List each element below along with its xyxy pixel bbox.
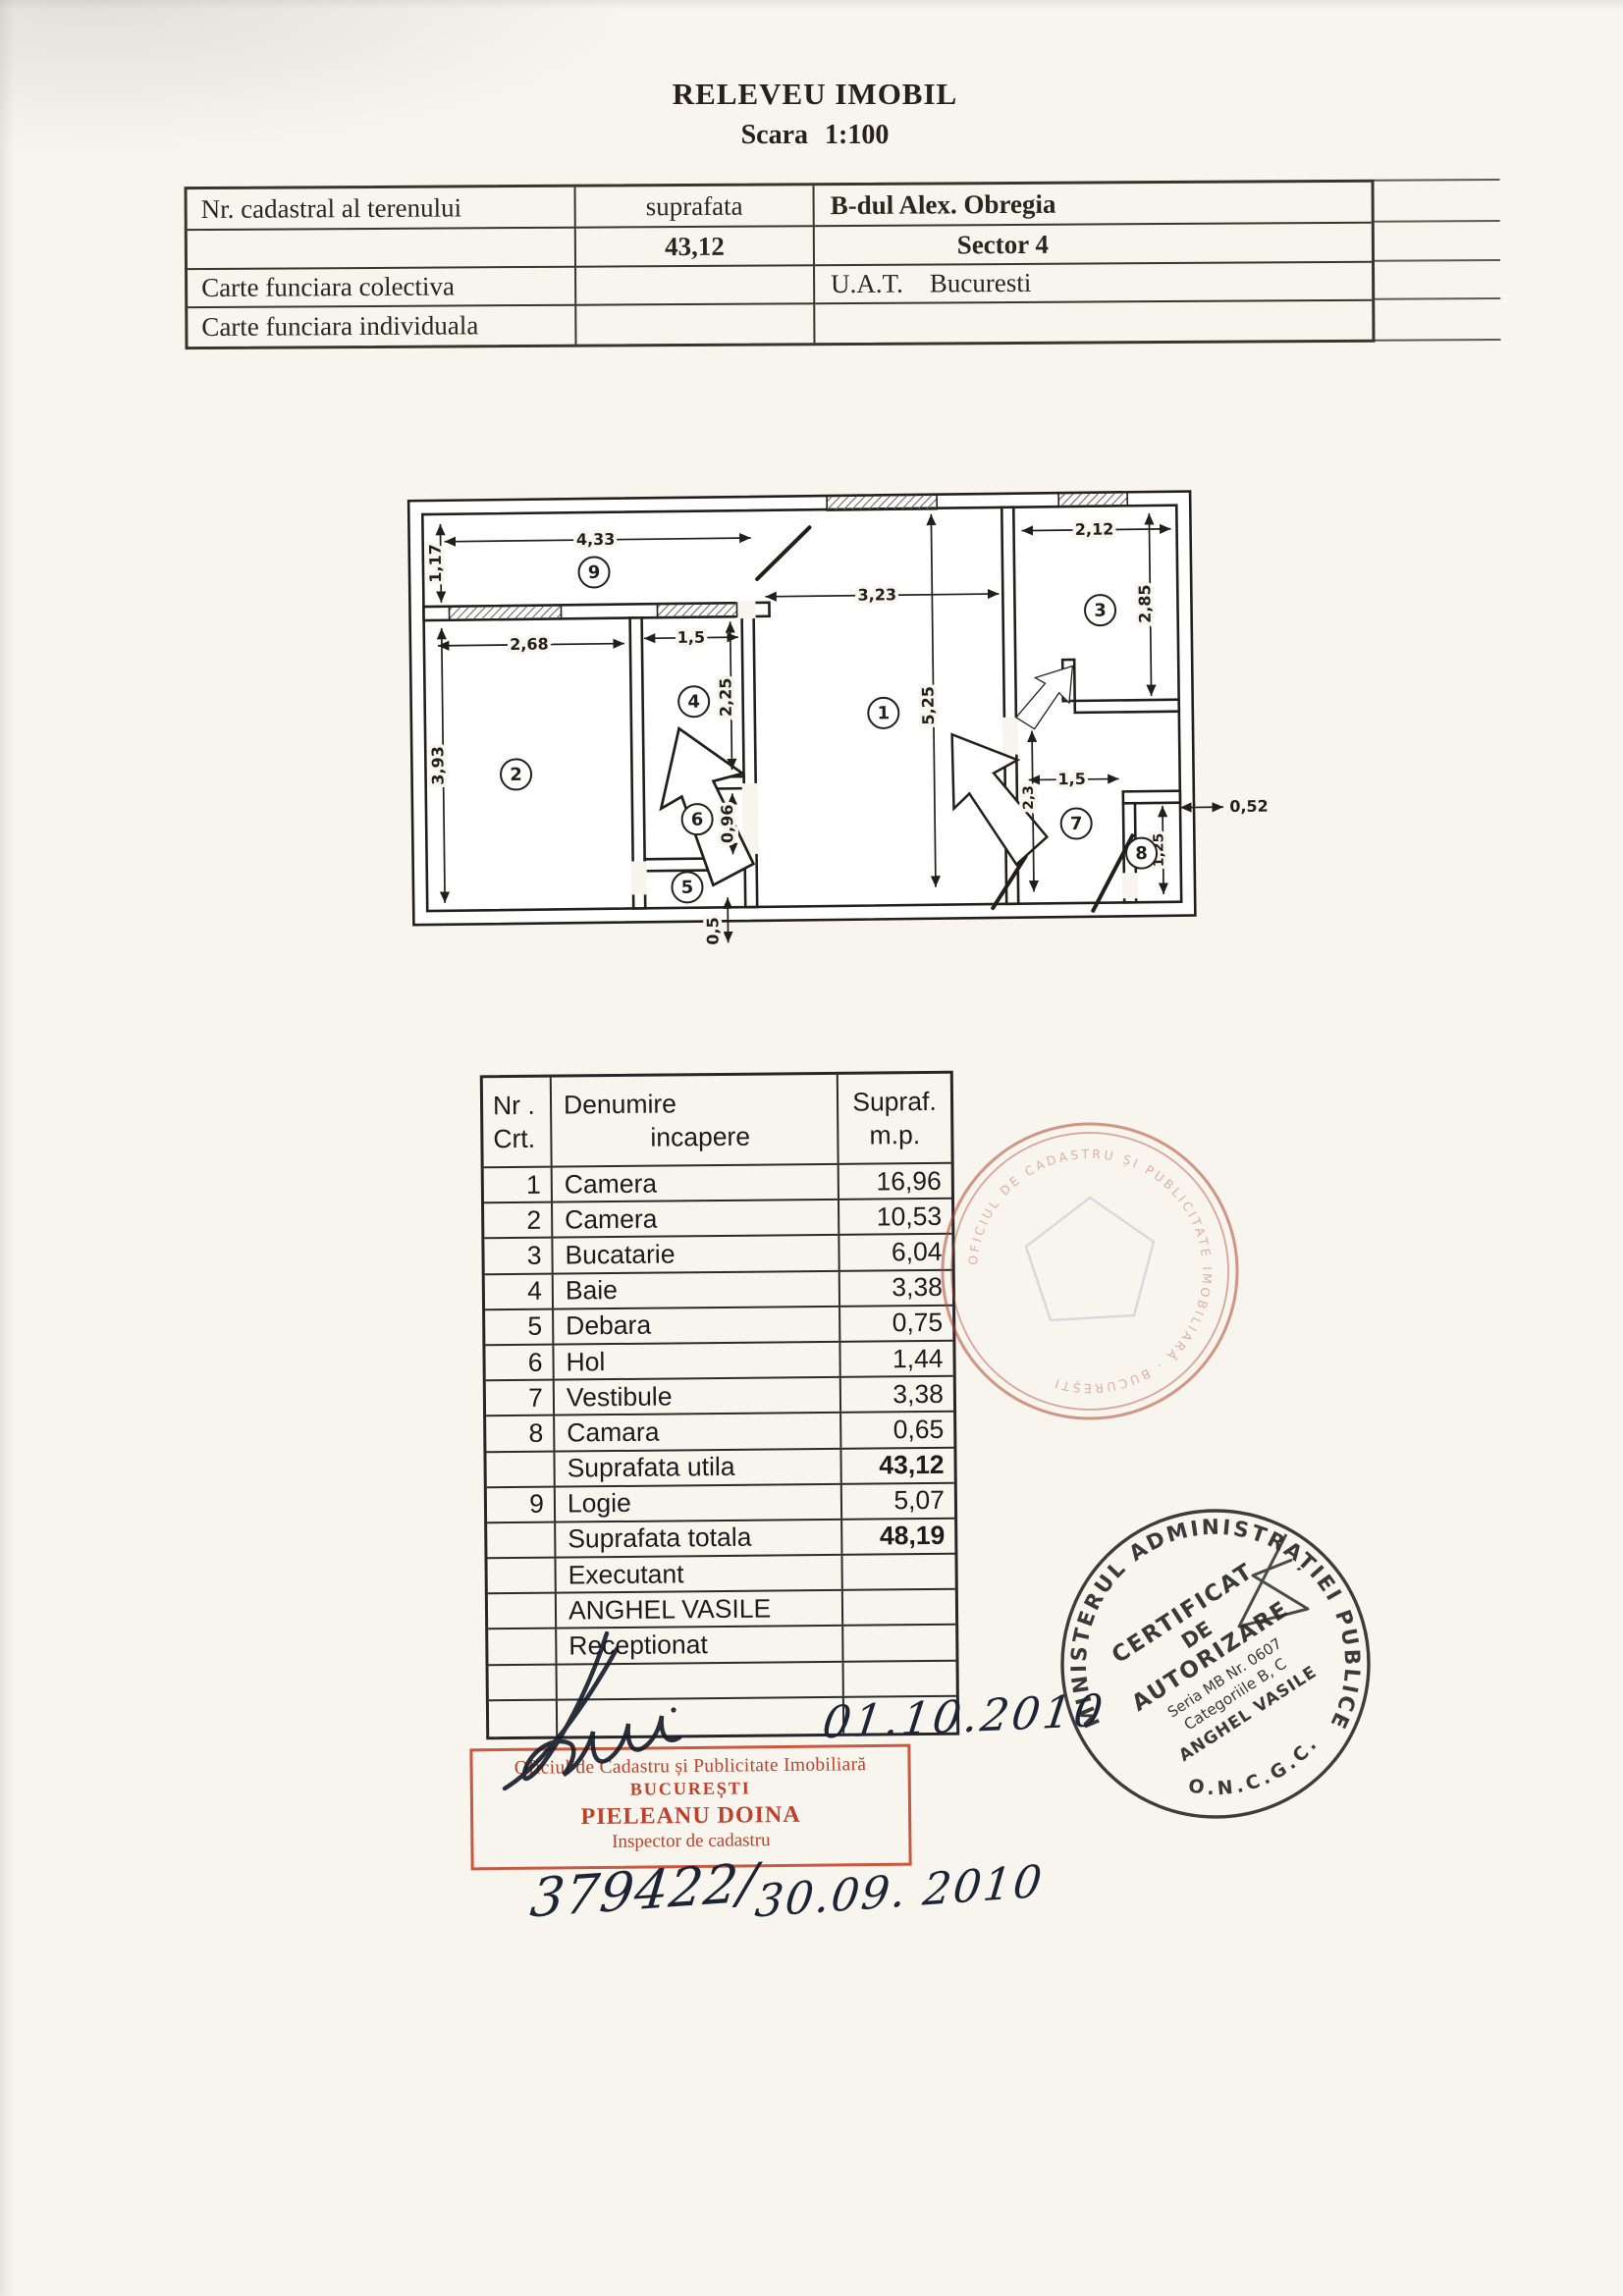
info-cell: Nr. cadastral al terenului — [188, 187, 576, 231]
dim-label: 0,52 — [1229, 797, 1269, 816]
room-number-9: 9 — [578, 557, 609, 587]
stamp-emblem — [1026, 1198, 1154, 1320]
info-cell: Carte funciara colectiva — [188, 268, 576, 308]
dim-label: 2,25 — [716, 677, 734, 717]
room-number-3: 3 — [1085, 595, 1115, 625]
table-row: 3Bucatarie6,04 — [484, 1235, 951, 1275]
table-line-extension — [1375, 259, 1500, 262]
table-row: 8Camara0,65 — [486, 1413, 953, 1453]
registration-number-right: 30.09. 2010 — [753, 1855, 1047, 1928]
dim-label: 1,5 — [1057, 770, 1086, 788]
info-cell — [188, 229, 576, 270]
page-title: RELEVEU IMOBIL — [550, 77, 1080, 112]
table-line-extension — [1375, 297, 1500, 300]
svg-text:6: 6 — [691, 810, 704, 830]
table-line-extension — [1374, 179, 1499, 182]
svg-text:3: 3 — [1094, 601, 1107, 621]
dim-label: 0,5 — [703, 917, 722, 945]
scale-label: Scara 1:100 — [550, 120, 1080, 151]
table-row: Suprafata utila43,12 — [486, 1448, 953, 1488]
dim-label: 2,3 — [1021, 785, 1037, 810]
dim-label: 2,68 — [510, 635, 549, 654]
dim-label: 2,12 — [1075, 519, 1114, 538]
info-cell: U.A.T. Bucuresti — [815, 263, 1372, 304]
table-header-row: Nr . Crt. Denumire incapere Supraf. m.p. — [483, 1074, 951, 1169]
room-number-4: 4 — [678, 686, 709, 717]
dim-label: 0,96 — [718, 804, 736, 843]
table-row: 9Logie5,07 — [487, 1483, 954, 1523]
cadastral-info-table: Nr. cadastral al terenului suprafata B-d… — [185, 179, 1513, 349]
dim-label: 4,33 — [576, 530, 616, 549]
stamp-center-text: CERTIFICAT DE AUTORIZARE Seria MB Nr. 06… — [1100, 1554, 1329, 1772]
svg-text:2: 2 — [510, 765, 522, 785]
info-cell: B-dul Alex. Obregia — [815, 183, 1372, 227]
floor-plan: .wall{fill:#ffffff;stroke:#221f1a;stroke… — [385, 470, 1279, 987]
svg-text:1: 1 — [877, 703, 890, 723]
svg-text:OFICIUL DE CADASTRU ȘI PUBLICI: OFICIUL DE CADASTRU ȘI PUBLICITATE IMOBI… — [965, 1147, 1215, 1396]
table-row: 5Debara0,75 — [485, 1306, 952, 1346]
info-cell — [815, 301, 1372, 343]
room-number-8: 8 — [1126, 837, 1157, 868]
svg-text:5: 5 — [681, 878, 694, 898]
info-cell: 43,12 — [576, 227, 815, 267]
table-line-extension — [1375, 220, 1500, 223]
header-denumire: Denumire incapere — [552, 1075, 839, 1166]
document-header: RELEVEU IMOBIL Scara 1:100 — [550, 77, 1080, 151]
stamp-inspector-name: PIELEANU DOINA — [473, 1801, 908, 1833]
svg-text:4: 4 — [687, 692, 700, 713]
info-cell — [576, 266, 815, 305]
info-cell: Carte funciara individuala — [188, 306, 576, 347]
info-cell: Sector 4 — [815, 224, 1372, 266]
dim-label: 1,5 — [677, 628, 706, 647]
header-nr-crt: Nr . Crt. — [483, 1078, 553, 1167]
info-table-grid: Nr. cadastral al terenului suprafata B-d… — [185, 180, 1376, 349]
table-line-extension — [1375, 339, 1500, 342]
dim-label: 5,25 — [918, 686, 937, 725]
handwritten-signature — [481, 1620, 727, 1796]
svg-text:9: 9 — [588, 562, 601, 583]
dim-label: 3,23 — [857, 585, 896, 604]
svg-text:7: 7 — [1070, 814, 1083, 834]
room-number-7: 7 — [1061, 808, 1092, 838]
info-cell — [576, 304, 815, 344]
table-row: Suprafata totala48,19 — [487, 1520, 954, 1560]
room-number-5: 5 — [672, 872, 702, 902]
table-row: 7Vestibule3,38 — [486, 1377, 953, 1417]
dim-label: 1,17 — [426, 544, 445, 583]
authorization-round-stamp: MINISTERUL ADMINISTRAȚIEI PUBLICE O.N.C.… — [1029, 1477, 1402, 1850]
info-cell: suprafata — [576, 186, 815, 228]
table-row: 6Hol1,44 — [485, 1342, 952, 1382]
faint-round-stamp: OFICIUL DE CADASTRU ȘI PUBLICITATE IMOBI… — [933, 1114, 1247, 1428]
table-row: 2Camera10,53 — [484, 1200, 951, 1240]
scanned-document-page: { "page": { "title": "RELEVEU IMOBIL", "… — [0, 0, 1623, 2296]
svg-text:8: 8 — [1135, 843, 1148, 864]
room-number-1: 1 — [868, 698, 898, 728]
table-row: 4Baie3,38 — [485, 1270, 952, 1310]
dim-label: 3,93 — [428, 746, 447, 785]
room-number-6: 6 — [681, 804, 712, 834]
table-row: 1Camera16,96 — [484, 1164, 951, 1204]
room-number-2: 2 — [501, 759, 531, 789]
dim-label: 2,85 — [1135, 584, 1154, 623]
plan-walls — [408, 492, 1195, 926]
table-row: Executant — [487, 1555, 954, 1595]
faint-stamp-text: OFICIUL DE CADASTRU ȘI PUBLICITATE IMOBI… — [965, 1147, 1215, 1396]
